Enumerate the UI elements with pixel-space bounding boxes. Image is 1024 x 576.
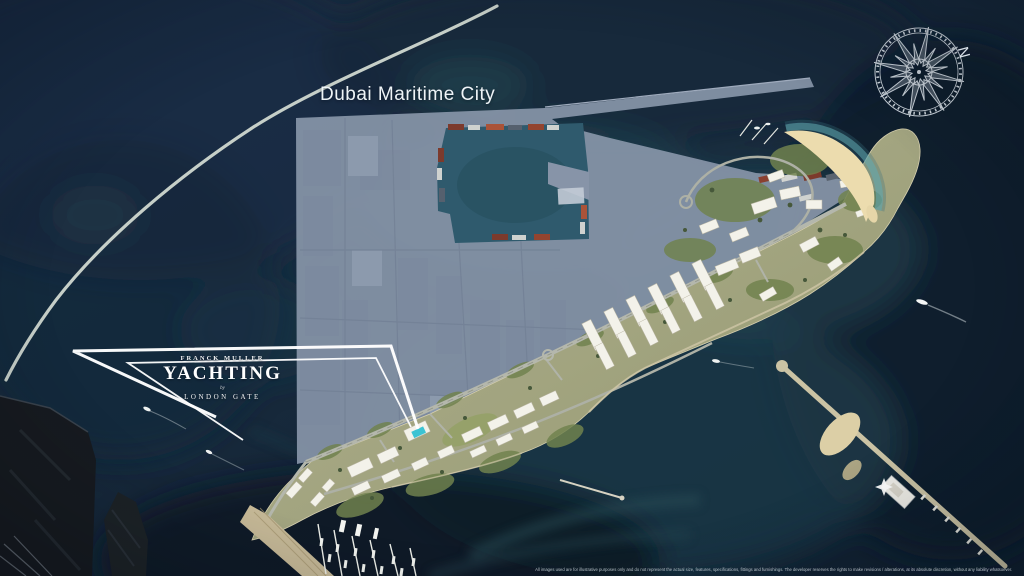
brand-name-label: FRANCK MULLER	[150, 355, 295, 362]
developer-name-label: LONDON GATE	[150, 393, 295, 401]
brand-connector-label: by	[150, 386, 295, 391]
area-label-dubai-maritime-city: Dubai Maritime City	[320, 84, 495, 106]
vignette	[0, 0, 1024, 576]
project-callout: FRANCK MULLER YACHTING by LONDON GATE	[150, 355, 295, 401]
map-canvas: Dubai Maritime City FRANCK MULLER YACHTI…	[0, 0, 1024, 576]
disclaimer-text: All images used are for illustrative pur…	[535, 568, 1012, 572]
satellite-map	[0, 0, 1024, 576]
project-name-label: YACHTING	[150, 363, 295, 385]
